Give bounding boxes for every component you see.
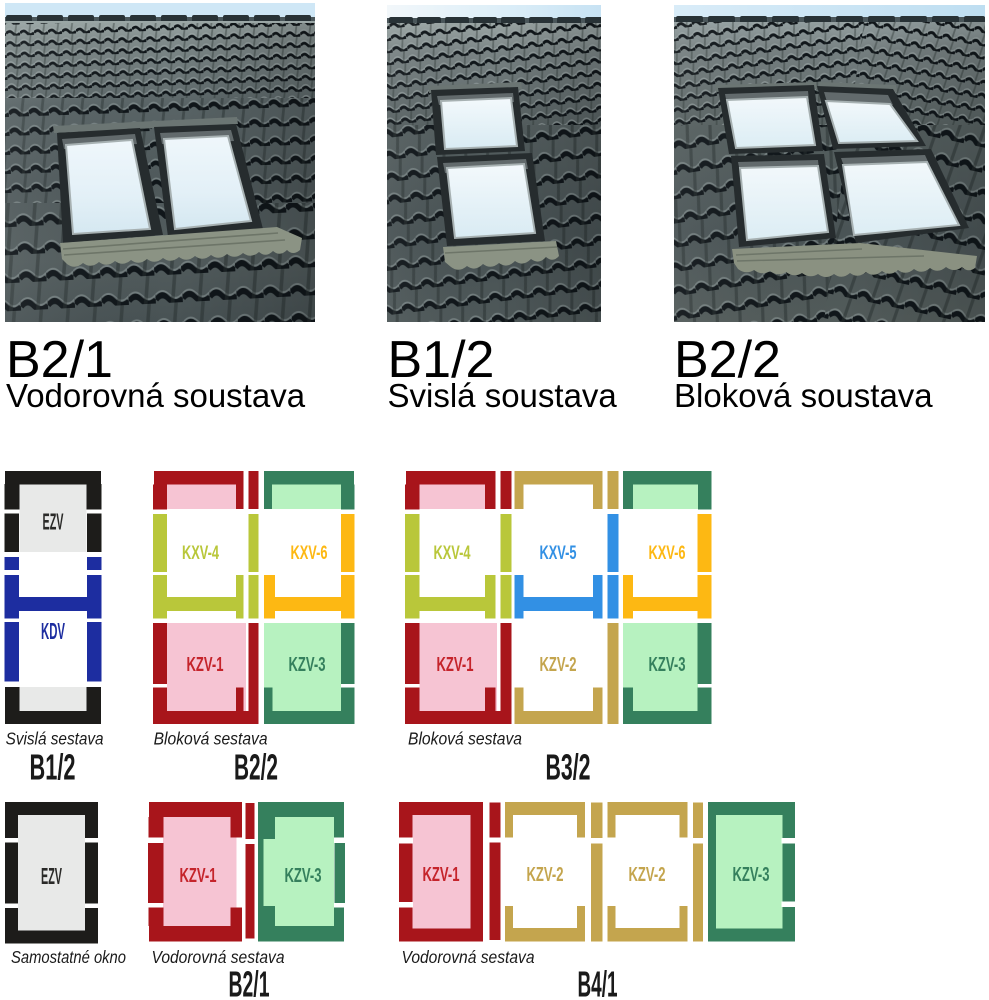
svg-text:Samostatné okno: Samostatné okno — [11, 947, 126, 967]
svg-text:B2/1: B2/1 — [229, 964, 270, 1000]
svg-text:KZV-2: KZV-2 — [527, 864, 564, 886]
svg-text:EZV: EZV — [43, 509, 64, 535]
svg-text:KZV-3: KZV-3 — [649, 654, 686, 676]
svg-text:KDV: KDV — [41, 618, 65, 644]
svg-text:B4/1: B4/1 — [578, 964, 618, 1000]
svg-text:KZV-3: KZV-3 — [733, 864, 770, 886]
svg-text:KZV-1: KZV-1 — [423, 864, 460, 886]
svg-text:B3/2: B3/2 — [546, 747, 591, 788]
svg-text:KXV-5: KXV-5 — [540, 543, 577, 564]
svg-text:Svislá soustava: Svislá soustava — [388, 377, 618, 414]
svg-text:KZV-2: KZV-2 — [540, 654, 577, 676]
svg-text:KZV-3: KZV-3 — [285, 865, 322, 887]
svg-text:Bloková soustava: Bloková soustava — [674, 377, 933, 414]
svg-text:EZV: EZV — [41, 863, 62, 889]
svg-text:B1/2: B1/2 — [30, 747, 76, 788]
svg-text:KZV-3: KZV-3 — [289, 654, 326, 676]
svg-text:KZV-1: KZV-1 — [187, 654, 224, 676]
svg-text:Svislá sestava: Svislá sestava — [6, 729, 104, 749]
svg-text:KXV-6: KXV-6 — [649, 543, 686, 564]
svg-text:Vodorovná sestava: Vodorovná sestava — [402, 947, 535, 967]
svg-text:Vodorovná soustava: Vodorovná soustava — [6, 377, 306, 414]
svg-text:KZV-1: KZV-1 — [437, 654, 474, 676]
svg-text:Bloková sestava: Bloková sestava — [154, 729, 268, 749]
svg-text:Bloková sestava: Bloková sestava — [408, 729, 522, 749]
svg-text:KZV-2: KZV-2 — [629, 864, 666, 886]
svg-text:B2/2: B2/2 — [234, 747, 278, 788]
svg-text:KXV-4: KXV-4 — [182, 543, 219, 564]
svg-text:KXV-6: KXV-6 — [291, 543, 328, 564]
svg-text:KXV-4: KXV-4 — [434, 543, 471, 564]
svg-text:KZV-1: KZV-1 — [180, 865, 217, 887]
